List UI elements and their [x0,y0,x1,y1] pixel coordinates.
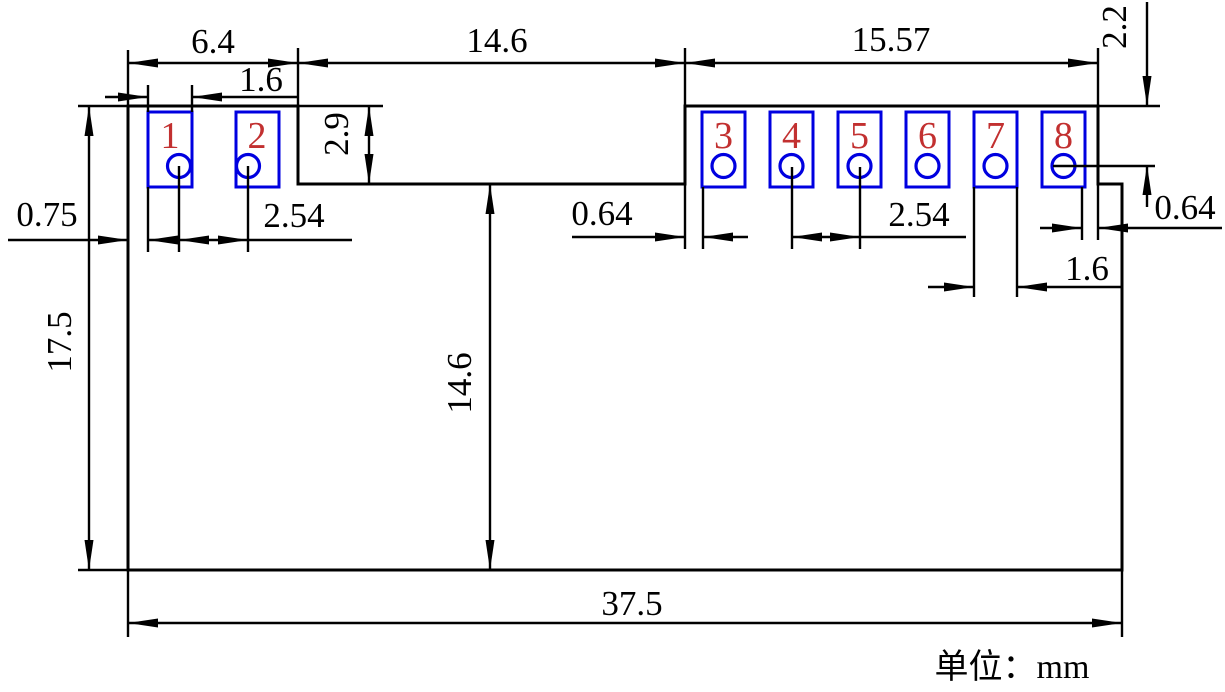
dim-label-top-left-width: 6.4 [191,22,235,61]
dim-edge-to-pad1: 0.75 [8,195,178,245]
dim-notch-width: 14.6 [298,21,685,68]
pad-8-number: 8 [1054,115,1073,157]
dim-label-edge-to-pad1: 0.75 [16,195,77,234]
pad-2-number: 2 [248,115,267,157]
pad-5-number: 5 [850,115,869,157]
dim-label-overall-width: 37.5 [601,584,662,623]
dim-label-pad8-to-edge: 0.64 [1154,188,1215,227]
dim-top-to-pin-center: 2.2 [1095,2,1152,207]
pad-2: 2 [236,112,279,187]
dim-notch-depth: 2.9 [317,106,374,184]
pads: 1 2 3 4 5 6 7 [148,112,1085,187]
dim-pitch-right: 2.54 [792,195,966,242]
dim-label-notch-depth: 2.9 [317,112,356,156]
pad-6-hole [916,155,939,178]
dim-top-right-width: 15.57 [685,20,1098,68]
pad-3: 3 [702,112,745,187]
dim-pad7-width: 1.6 [928,249,1122,292]
dim-label-body-height: 17.5 [40,311,79,372]
footprint-drawing: 1 2 3 4 5 6 7 [0,0,1225,692]
dim-label-pitch-left: 2.54 [263,196,324,235]
dim-label-pitch-right: 2.54 [888,195,949,234]
pad-1-number: 1 [161,115,180,157]
pad-6-number: 6 [918,115,937,157]
dim-notch-to-bottom: 14.6 [440,184,495,570]
dim-pad8-to-edge: 0.64 [1040,188,1222,233]
pad-3-number: 3 [714,115,733,157]
pad-3-hole [712,155,735,178]
pad-7-number: 7 [986,115,1005,157]
unit-note: 单位：mm [935,648,1090,686]
pad-7: 7 [974,112,1017,187]
dim-label-notch-width: 14.6 [466,21,527,60]
dim-label-pad1-width: 1.6 [239,60,283,99]
drawing-sheet: 1 2 3 4 5 6 7 [0,0,1225,692]
dim-pad1-width: 1.6 [105,60,298,102]
dim-label-top-right-width: 15.57 [852,20,931,59]
dim-label-pad7-width: 1.6 [1065,249,1109,288]
dim-body-height: 17.5 [40,106,94,570]
pad-7-hole [984,155,1007,178]
dim-label-pin3-inset: 0.64 [571,194,632,233]
pad-6: 6 [906,112,949,187]
dim-overall-width: 37.5 [128,584,1122,628]
pad-4-number: 4 [782,115,801,157]
dim-pin3-inset: 0.64 [571,194,748,242]
dim-label-top-to-pin-center: 2.2 [1095,5,1134,49]
dim-label-notch-to-bottom: 14.6 [440,352,479,413]
pad-1: 1 [148,112,192,187]
pad-8: 8 [1042,112,1085,187]
